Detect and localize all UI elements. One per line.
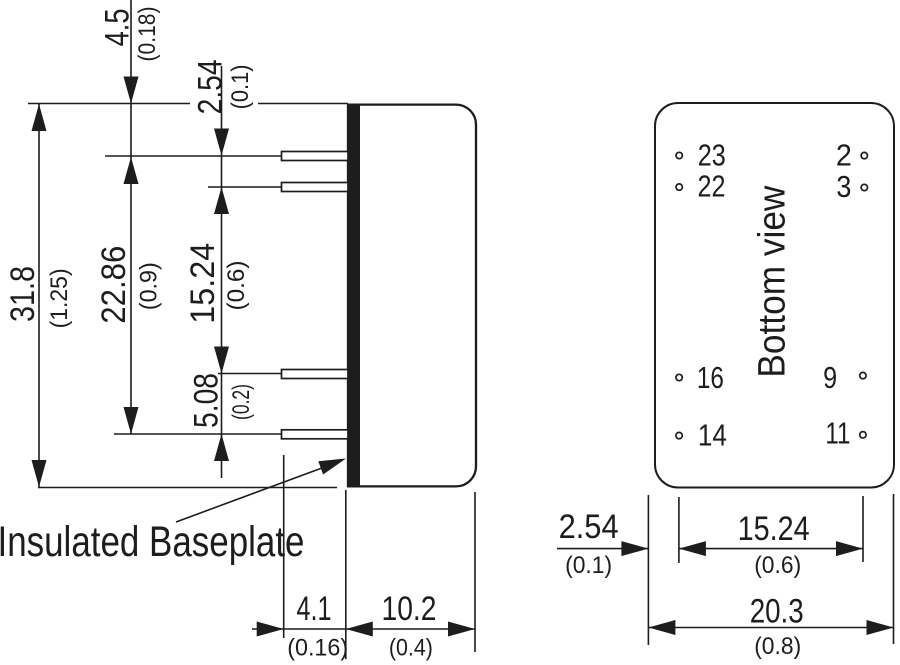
svg-text:9: 9 — [823, 360, 837, 395]
svg-text:14: 14 — [698, 417, 727, 452]
svg-text:5.08: 5.08 — [188, 373, 226, 428]
svg-text:(0.4): (0.4) — [389, 634, 433, 661]
svg-text:(0.9): (0.9) — [136, 262, 163, 310]
svg-text:2.54: 2.54 — [559, 508, 619, 546]
svg-text:(0.6): (0.6) — [754, 552, 801, 579]
svg-text:10.2: 10.2 — [382, 590, 437, 628]
svg-text:(0.1): (0.1) — [227, 64, 254, 109]
svg-text:15.24: 15.24 — [184, 243, 222, 324]
svg-text:20.3: 20.3 — [750, 592, 804, 630]
svg-text:4.5: 4.5 — [99, 8, 137, 46]
svg-text:11: 11 — [825, 416, 850, 451]
svg-text:(0.16): (0.16) — [287, 634, 348, 661]
svg-text:(0.18): (0.18) — [134, 7, 161, 62]
svg-text:4.1: 4.1 — [297, 590, 332, 628]
svg-text:31.8: 31.8 — [4, 266, 42, 322]
svg-text:Bottom view: Bottom view — [752, 185, 794, 378]
svg-text:(1.25): (1.25) — [46, 268, 73, 328]
svg-text:2.54: 2.54 — [192, 59, 230, 114]
svg-text:(0.6): (0.6) — [223, 261, 250, 311]
svg-text:16: 16 — [697, 360, 724, 395]
svg-text:(0.1): (0.1) — [565, 552, 612, 579]
svg-text:15.24: 15.24 — [738, 510, 810, 548]
svg-text:22.86: 22.86 — [95, 246, 133, 324]
svg-text:Insulated Baseplate: Insulated Baseplate — [0, 518, 305, 566]
svg-text:3: 3 — [836, 169, 851, 204]
svg-text:(0.2): (0.2) — [228, 384, 255, 420]
svg-text:22: 22 — [698, 169, 726, 204]
svg-text:(0.8): (0.8) — [754, 633, 801, 660]
svg-text:2: 2 — [836, 137, 852, 172]
svg-text:23: 23 — [698, 137, 726, 172]
